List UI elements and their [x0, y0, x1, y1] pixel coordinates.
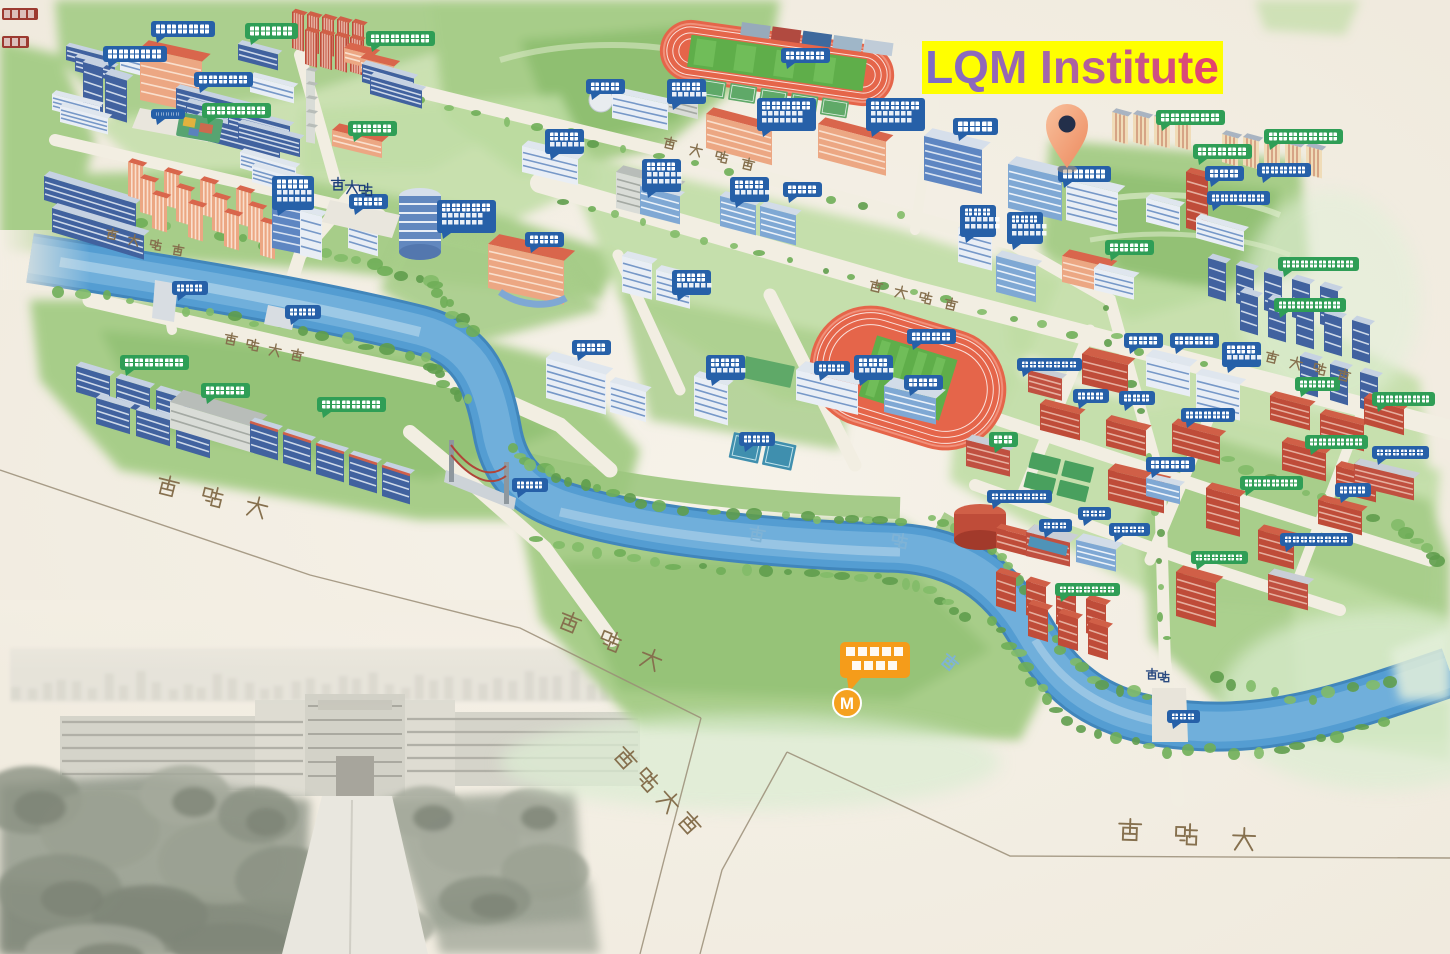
svg-text:LQM Institute: LQM Institute — [925, 41, 1219, 93]
svg-text:M: M — [840, 694, 854, 713]
